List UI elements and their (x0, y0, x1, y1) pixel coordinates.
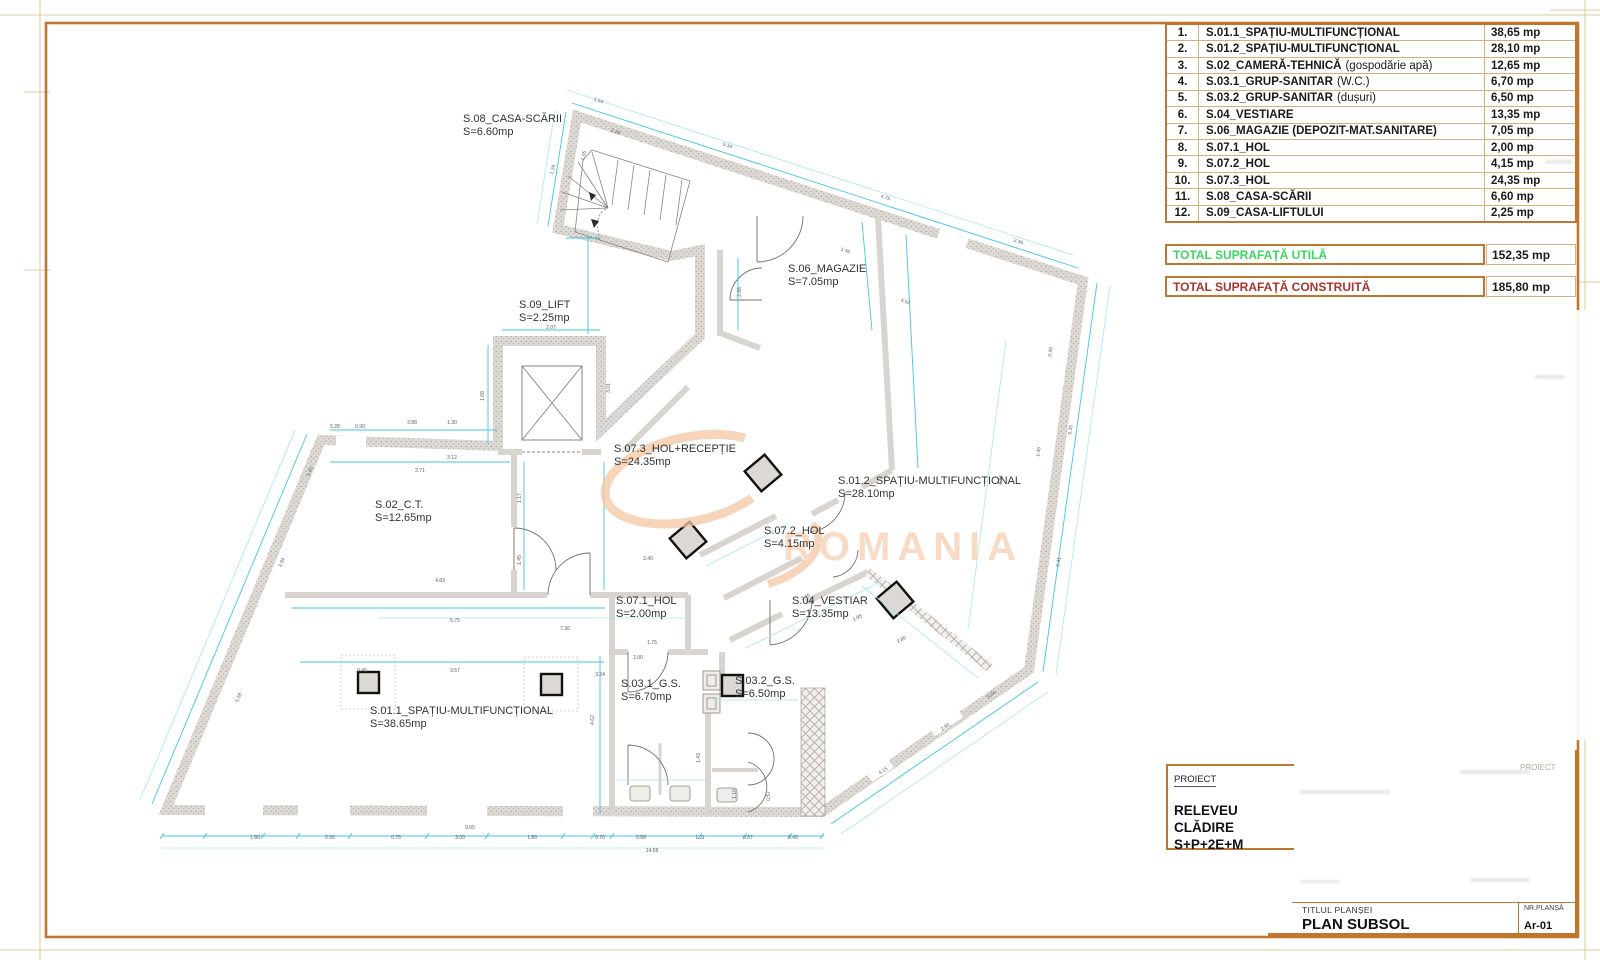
smudge-mark (1545, 160, 1573, 164)
vestiar-crosshatch-wall (868, 572, 990, 668)
title-block-bottom-bar (1268, 933, 1578, 937)
dim-label: 3.00 (455, 835, 465, 841)
room-labels: S.08_CASA-SCĂRIIS=6.60mpS.09_LIFTS=2.25m… (370, 112, 1021, 730)
dim-label: 0.40 (357, 668, 367, 674)
title-strip: TITLUL PLANȘEI PLAN SUBSOL NR.PLANȘĂ Ar-… (1292, 902, 1578, 936)
dim-label: 1.11 (695, 835, 705, 841)
dim-label: 2.40 (643, 556, 653, 562)
dim-label: 2.00 (633, 655, 643, 661)
smudge-mark (1535, 375, 1565, 379)
schedule-row-number: 5. (1167, 91, 1199, 106)
dim-label: 3.88 (407, 420, 417, 426)
schedule-row: 7.S.06_MAGAZIE (DEPOZIT-MAT.SANITARE)7,0… (1167, 124, 1575, 140)
room-label-s073: S.07.3_HOL+RECEPȚIES=24.35mp (614, 443, 736, 468)
room-label-s06: S.06_MAGAZIES=7.05mp (788, 263, 866, 288)
dim-label: 1.75 (647, 640, 657, 646)
dim-label: 1.80 (250, 835, 260, 841)
schedule-row-note: (dușuri) (1337, 92, 1376, 104)
schedule-row-label: S.07.1_HOL (1199, 140, 1485, 155)
schedule-row-area: 6,70 mp (1485, 76, 1575, 88)
titlul-plansei-label: TITLUL PLANȘEI (1302, 905, 1518, 915)
schedule-row-label: S.04_VESTIARE (1199, 107, 1485, 122)
smudge-mark (1300, 790, 1390, 794)
total-construit-box: TOTAL SUPRAFAȚĂ CONSTRUITĂ (1165, 276, 1485, 297)
schedule-row: 4.S.03.1_GRUP-SANITAR(W.C.)6,70 mp (1167, 74, 1575, 90)
schedule-row-area: 7,05 mp (1485, 125, 1575, 137)
schedule-row: 8.S.07.1_HOL2,00 mp (1167, 140, 1575, 156)
schedule-row-area: 2,25 mp (1485, 207, 1575, 219)
schedule-row-label: S.09_CASA-LIFTULUI (1199, 206, 1485, 221)
room-schedule-table: 1.S.01.1_SPAȚIU-MULTIFUNCȚIONAL38,65 mp2… (1165, 23, 1577, 223)
schedule-row-label: S.01.2_SPAȚIU-MULTIFUNCȚIONAL (1199, 41, 1485, 56)
dim-label: 3.57 (450, 668, 460, 674)
schedule-row-area: 38,65 mp (1485, 27, 1575, 39)
schedule-row-note: (gospodărie apă) (1345, 60, 1432, 72)
schedule-row-number: 1. (1167, 25, 1199, 40)
proiect-box: PROIECT RELEVEU CLĂDIRE S+P+2E+M (1166, 764, 1294, 850)
schedule-row-number: 7. (1167, 124, 1199, 139)
dim-label: 5.35 (1067, 424, 1074, 435)
dim-label: 3.12 (447, 455, 457, 461)
dim-label: 1.68 (480, 391, 486, 401)
dim-label: 0.57 (766, 791, 772, 801)
dim-label: 4.62 (590, 715, 596, 725)
dim-label: 1.30 (447, 420, 457, 426)
dim-label: 1.46 (840, 247, 851, 256)
dim-label: 3.04 (277, 557, 286, 569)
schedule-row-label: S.08_CASA-SCĂRII (1199, 189, 1485, 204)
schedule-row-label: S.07.3_HOL (1199, 173, 1485, 188)
lift-shaft (522, 366, 582, 452)
plan-group: ROMANIA S.08_CASA-SCĂRIIS=6.60mpS.09_LIF… (140, 90, 1110, 854)
dim-label: 9.05 (465, 825, 475, 831)
schedule-row: 11.S.08_CASA-SCĂRII6,60 mp (1167, 189, 1575, 205)
schedule-row: 2.S.01.2_SPAȚIU-MULTIFUNCȚIONAL28,10 mp (1167, 41, 1575, 57)
schedule-row-label: S.03.1_GRUP-SANITAR(W.C.) (1199, 74, 1485, 89)
total-construit-value: 185,80 mp (1486, 276, 1576, 297)
schedule-row-area: 28,10 mp (1485, 43, 1575, 55)
nr-plansa-label: NR.PLANȘĂ (1524, 905, 1578, 912)
room-label-s09: S.09_LIFTS=2.25mp (519, 299, 571, 324)
dim-label: 5.34 (722, 142, 733, 151)
smudge-mark (1300, 880, 1340, 883)
schedule-row: 10.S.07.3_HOL24,35 mp (1167, 173, 1575, 189)
dim-label: 0.40 (788, 835, 798, 841)
dim-label: 1.17 (517, 493, 523, 503)
schedule-row: 9.S.07.2_HOL4,15 mp (1167, 156, 1575, 172)
dim-label: 14.58 (646, 848, 659, 854)
room-label-s011: S.01.1_SPAȚIU-MULTIFUNCȚIONALS=38.65mp (370, 705, 553, 730)
proiect-label: PROIECT (1174, 774, 1216, 787)
schedule-row: 3.S.02_CAMERĂ-TEHNICĂ(gospodărie apă)12,… (1167, 58, 1575, 74)
nr-plansa-value: Ar-01 (1524, 920, 1578, 932)
dim-label: 1.05 (580, 150, 588, 161)
smudge-mark (1470, 878, 1530, 882)
schedule-row-number: 11. (1167, 189, 1199, 204)
ladder-wall (801, 688, 825, 816)
schedule-row-number: 3. (1167, 58, 1199, 73)
dim-label: 3.01 (606, 383, 612, 393)
dim-label: 0.58 (636, 835, 646, 841)
schedule-row-label: S.06_MAGAZIE (DEPOZIT-MAT.SANITARE) (1199, 124, 1485, 139)
schedule-row-label: S.02_CAMERĂ-TEHNICĂ(gospodărie apă) (1199, 58, 1485, 73)
dim-label: 5.75 (450, 618, 460, 624)
dim-label: 1.45 (517, 555, 523, 565)
project-name-line1: RELEVEU CLĂDIRE (1174, 803, 1288, 837)
schedule-row-area: 6,50 mp (1485, 92, 1575, 104)
schedule-row-note: (W.C.) (1337, 76, 1370, 88)
dim-label: 2.71 (415, 468, 425, 474)
schedule-row: 12.S.09_CASA-LIFTULUI2,25 mp (1167, 206, 1575, 221)
dim-label: 2.46 (1013, 238, 1024, 247)
total-construit-label: TOTAL SUPRAFAȚĂ CONSTRUITĂ (1173, 280, 1370, 294)
schedule-row-label: S.01.1_SPAȚIU-MULTIFUNCȚIONAL (1199, 25, 1485, 40)
room-label-s032: S.03.2_G.S.S=6.50mp (735, 675, 795, 700)
schedule-row-number: 6. (1167, 107, 1199, 122)
dim-label: 6.41 (1055, 556, 1062, 567)
schedule-row: 6.S.04_VESTIARE13,35 mp (1167, 107, 1575, 123)
total-util-value: 152,35 mp (1486, 244, 1576, 265)
schedule-row-area: 6,60 mp (1485, 191, 1575, 203)
dim-label: 2.86 (896, 635, 908, 645)
dim-label: 4.83 (435, 578, 445, 584)
dim-label: 1.43 (696, 753, 702, 763)
dimension-lines-light (140, 90, 1110, 848)
dim-label: 2.07 (546, 325, 556, 331)
total-util-label: TOTAL SUPRAFAȚĂ UTILĂ (1173, 248, 1327, 262)
schedule-row-label: S.07.2_HOL (1199, 156, 1485, 171)
dim-label: 1.10 (732, 789, 738, 799)
schedule-row-number: 2. (1167, 41, 1199, 56)
dim-label: 5.58 (234, 692, 243, 704)
erased-area (1560, 310, 1598, 740)
plan-title: PLAN SUBSOL (1302, 916, 1518, 933)
dim-label: 0.90 (355, 424, 365, 430)
dim-label: 0.57 (743, 835, 753, 841)
room-label-s071: S.07.1_HOLS=2.00mp (616, 595, 677, 620)
dim-label: 0.90 (325, 835, 335, 841)
smudge-mark (1460, 770, 1530, 774)
schedule-row-number: 12. (1167, 206, 1199, 221)
schedule-row: 1.S.01.1_SPAȚIU-MULTIFUNCȚIONAL38,65 mp (1167, 25, 1575, 41)
total-util-box: TOTAL SUPRAFAȚĂ UTILĂ (1165, 244, 1485, 265)
schedule-row: 5.S.03.2_GRUP-SANITAR(dușuri)6,50 mp (1167, 91, 1575, 107)
schedule-row-number: 4. (1167, 74, 1199, 89)
schedule-row-area: 24,35 mp (1485, 175, 1575, 187)
dim-label: 5.28 (330, 424, 340, 430)
columns (341, 455, 913, 711)
schedule-row-number: 9. (1167, 156, 1199, 171)
dim-label: 0.75 (391, 835, 401, 841)
room-label-s02: S.02_C.T.S=12.65mp (375, 499, 432, 524)
schedule-row-area: 12,65 mp (1485, 60, 1575, 72)
project-name-line2: S+P+2E+M (1174, 837, 1288, 854)
dim-label: 1.54 (593, 97, 604, 106)
schedule-row-number: 10. (1167, 173, 1199, 188)
schedule-row-label: S.03.2_GRUP-SANITAR(dușuri) (1199, 91, 1485, 106)
schedule-row-area: 13,35 mp (1485, 109, 1575, 121)
dim-label: 7.36 (560, 626, 570, 632)
schedule-row-number: 8. (1167, 140, 1199, 155)
dim-label: 2.86 (737, 287, 743, 297)
dim-label: 3.24 (595, 672, 605, 678)
dim-label: 0.99 (1047, 346, 1054, 357)
dim-label: 1.80 (527, 835, 537, 841)
room-label-s031: S.03.1_G.S.S=6.70mp (621, 678, 681, 703)
dimension-lines (152, 103, 1097, 839)
title-block-right-bar (1575, 750, 1578, 937)
dim-label: 1.98 (852, 613, 864, 623)
room-label-s08: S.08_CASA-SCĂRIIS=6.60mp (463, 112, 562, 138)
dim-label: 0.70 (595, 835, 605, 841)
room-label-s012: S.01.2_SPAȚIU-MULTIFUNCȚIONALS=28.10mp (838, 475, 1021, 500)
schedule-row-area: 2,00 mp (1485, 142, 1575, 154)
